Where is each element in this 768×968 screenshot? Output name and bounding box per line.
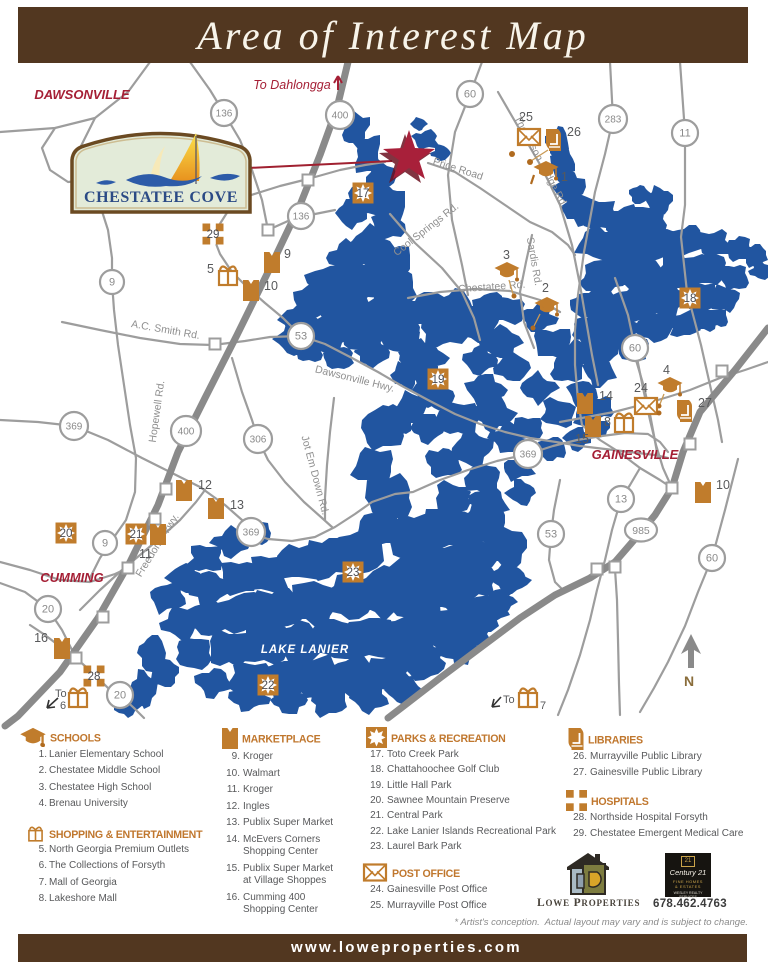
svg-text:29: 29 — [207, 229, 220, 241]
svg-text:306: 306 — [250, 435, 267, 446]
svg-text:53: 53 — [545, 529, 557, 541]
svg-text:Price Road: Price Road — [431, 155, 484, 183]
svg-text:2: 2 — [542, 281, 549, 295]
svg-text:12: 12 — [198, 478, 212, 492]
svg-text:To Dahlongga: To Dahlongga — [253, 78, 330, 92]
svg-text:7: 7 — [540, 700, 546, 712]
svg-text:13: 13 — [230, 498, 244, 512]
svg-text:28: 28 — [88, 671, 101, 683]
svg-text:19: 19 — [432, 374, 445, 386]
svg-text:369: 369 — [66, 422, 83, 433]
svg-text:11: 11 — [139, 547, 152, 561]
svg-text:16: 16 — [34, 631, 48, 645]
svg-text:9: 9 — [102, 538, 108, 550]
svg-text:22: 22 — [262, 680, 275, 692]
svg-text:N: N — [684, 673, 694, 689]
svg-text:24: 24 — [634, 381, 648, 395]
svg-text:3: 3 — [503, 248, 510, 262]
svg-text:10: 10 — [716, 478, 730, 492]
svg-text:369: 369 — [520, 450, 537, 461]
svg-text:60: 60 — [706, 553, 718, 565]
svg-text:25: 25 — [519, 110, 533, 124]
svg-text:400: 400 — [178, 427, 195, 438]
svg-text:20: 20 — [60, 528, 73, 540]
svg-text:283: 283 — [605, 115, 622, 126]
svg-text:20: 20 — [42, 604, 54, 616]
svg-text:DAWSONVILLE: DAWSONVILLE — [34, 87, 130, 102]
svg-text:10: 10 — [264, 279, 278, 293]
svg-text:21: 21 — [130, 529, 143, 541]
svg-text:60: 60 — [629, 343, 641, 355]
svg-text:27: 27 — [698, 396, 712, 410]
svg-text:17: 17 — [357, 188, 370, 200]
svg-text:13: 13 — [615, 494, 627, 506]
svg-text:20: 20 — [114, 690, 126, 702]
svg-text:15: 15 — [575, 432, 589, 446]
svg-text:136: 136 — [216, 109, 233, 120]
svg-text:369: 369 — [243, 528, 260, 539]
svg-text:5: 5 — [207, 262, 214, 276]
svg-text:LAKE LANIER: LAKE LANIER — [261, 644, 349, 656]
svg-text:60: 60 — [464, 89, 476, 101]
svg-text:26: 26 — [567, 125, 581, 139]
svg-text:53: 53 — [295, 331, 307, 343]
svg-text:136: 136 — [293, 212, 310, 223]
svg-text:18: 18 — [684, 293, 697, 305]
svg-text:GAINESVILLE: GAINESVILLE — [592, 447, 679, 462]
svg-text:Dawsonville Hwy.: Dawsonville Hwy. — [314, 363, 396, 394]
svg-text:CUMMING: CUMMING — [40, 570, 104, 585]
svg-text:CHESTATEE COVE: CHESTATEE COVE — [84, 189, 238, 206]
svg-text:To: To — [503, 694, 515, 706]
svg-text:6: 6 — [60, 700, 66, 712]
svg-text:11: 11 — [679, 128, 690, 140]
svg-text:23: 23 — [347, 567, 360, 579]
svg-text:9: 9 — [109, 277, 115, 289]
svg-text:9: 9 — [284, 247, 291, 261]
svg-text:8: 8 — [604, 415, 611, 429]
svg-text:985: 985 — [632, 525, 650, 537]
svg-text:400: 400 — [332, 111, 349, 122]
svg-text:1: 1 — [561, 170, 568, 184]
svg-text:Hopewell Rd.: Hopewell Rd. — [147, 380, 168, 444]
svg-text:4: 4 — [663, 363, 670, 377]
svg-text:14: 14 — [599, 389, 613, 403]
